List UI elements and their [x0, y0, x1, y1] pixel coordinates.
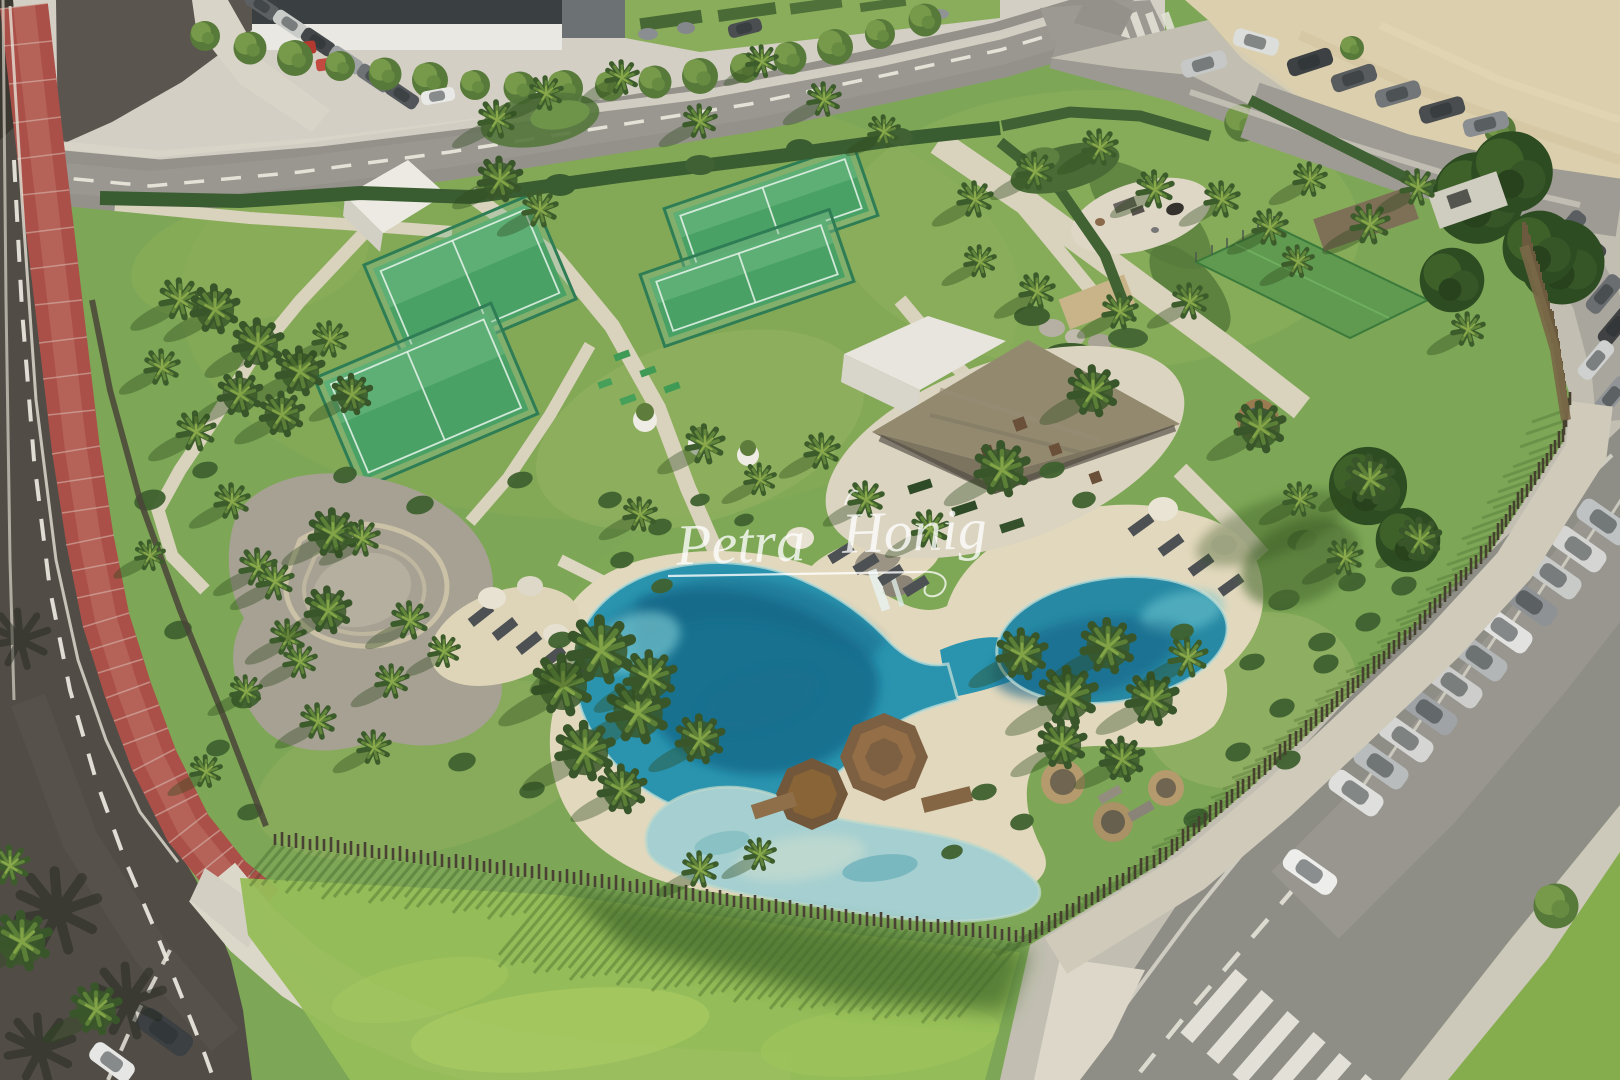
svg-text:Honig: Honig [840, 496, 988, 566]
svg-text:Petra: Petra [674, 508, 806, 577]
